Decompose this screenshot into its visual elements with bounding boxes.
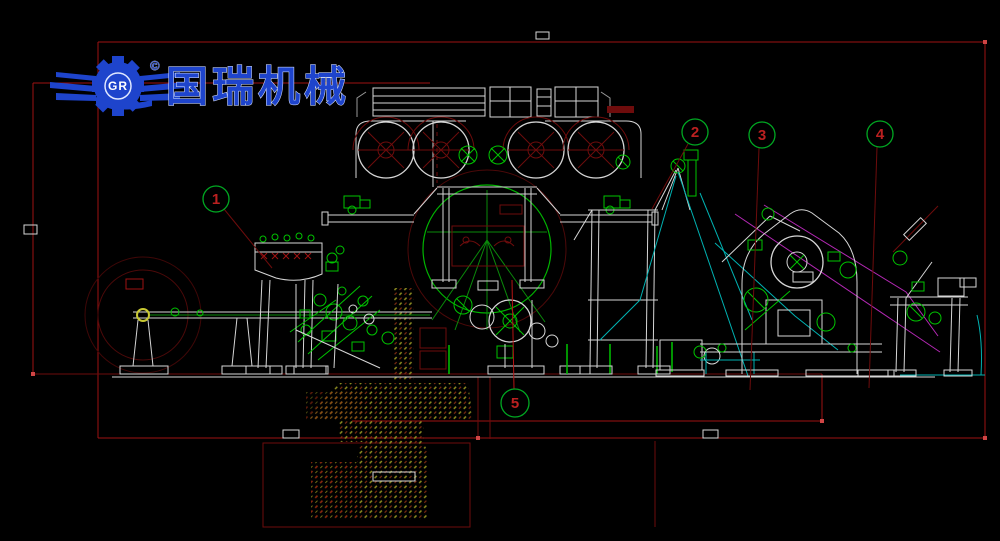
reel-section xyxy=(700,206,938,376)
crane-frame xyxy=(574,150,720,376)
red-cross-marks xyxy=(261,253,311,259)
logo-monogram: GR xyxy=(108,79,128,93)
callout-4-number: 4 xyxy=(876,126,885,143)
callout-1[interactable]: 1 xyxy=(203,186,272,268)
callout-2-number: 2 xyxy=(691,124,699,141)
dryer-cylinders xyxy=(353,117,630,178)
dryer-cylinder xyxy=(503,117,569,178)
copyright-symbol: © xyxy=(150,58,160,73)
callout-2[interactable]: 2 xyxy=(652,119,708,209)
felt-runs-cyan xyxy=(600,172,982,376)
callout-1-number: 1 xyxy=(212,191,220,208)
dryer-cylinder xyxy=(408,117,474,178)
company-name: 国瑞机械 xyxy=(166,63,350,110)
wire-section xyxy=(286,284,394,374)
logo: GR © 国瑞机械 xyxy=(50,56,350,116)
callout-4[interactable]: 4 xyxy=(867,121,893,388)
unwind-hub xyxy=(137,309,149,321)
callout-5-number: 5 xyxy=(511,395,519,412)
red-tag xyxy=(126,279,143,289)
yankee-frame xyxy=(322,187,658,290)
dryer-cylinder xyxy=(563,117,629,178)
red-tag xyxy=(607,106,634,113)
cad-viewport[interactable]: 1 2 3 4 5 xyxy=(0,0,1000,541)
callout-3-number: 3 xyxy=(758,127,766,144)
press-vat-section xyxy=(449,296,657,374)
paper-machine-drawing[interactable]: 1 2 3 4 5 xyxy=(0,0,1000,541)
dryer-cylinder xyxy=(353,117,419,178)
foundation-hatch xyxy=(306,288,473,520)
right-stand xyxy=(888,251,972,376)
red-border-lines xyxy=(31,40,987,527)
